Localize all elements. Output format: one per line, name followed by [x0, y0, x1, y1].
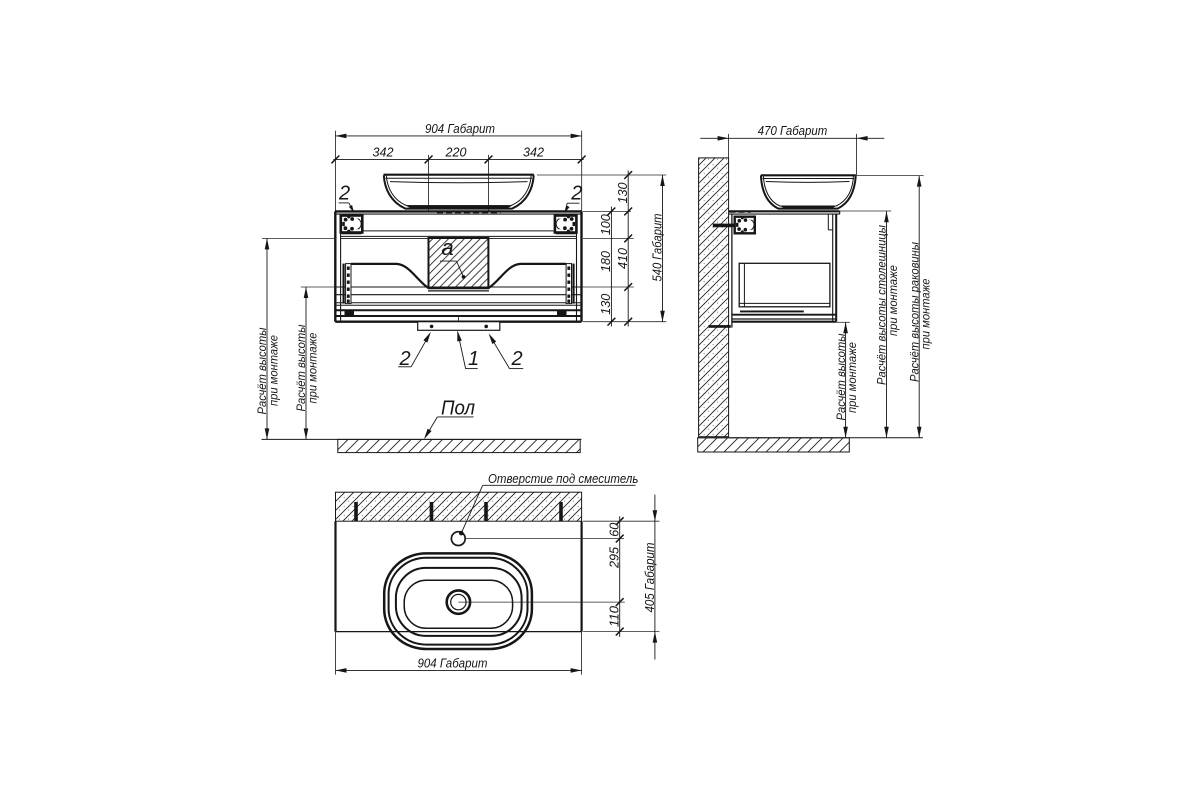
svg-text:410: 410: [616, 248, 630, 269]
svg-text:1: 1: [468, 348, 479, 370]
svg-text:342: 342: [523, 145, 544, 159]
svg-text:Пол: Пол: [441, 397, 475, 419]
svg-text:при монтаже: при монтаже: [305, 332, 319, 403]
svg-text:904 Габарит: 904 Габарит: [425, 122, 495, 136]
svg-text:Отверстие под смеситель: Отверстие под смеситель: [488, 472, 638, 486]
svg-text:342: 342: [373, 145, 394, 159]
svg-text:при монтаже: при монтаже: [266, 335, 280, 406]
svg-text:2: 2: [510, 348, 522, 370]
svg-text:при монтаже: при монтаже: [845, 342, 859, 413]
svg-text:при монтаже: при монтаже: [886, 265, 900, 336]
svg-text:110: 110: [608, 606, 622, 627]
svg-text:2: 2: [570, 183, 582, 205]
svg-text:470 Габарит: 470 Габарит: [758, 124, 828, 138]
svg-text:220: 220: [445, 145, 467, 159]
svg-text:130: 130: [616, 183, 630, 204]
svg-text:295: 295: [608, 546, 622, 569]
svg-text:60: 60: [608, 523, 622, 537]
svg-text:904 Габарит: 904 Габарит: [418, 657, 488, 671]
svg-text:2: 2: [338, 182, 350, 204]
svg-text:при монтаже: при монтаже: [919, 278, 933, 349]
svg-text:405 Габарит: 405 Габарит: [643, 543, 657, 613]
svg-text:540 Габарит: 540 Габарит: [650, 214, 664, 282]
